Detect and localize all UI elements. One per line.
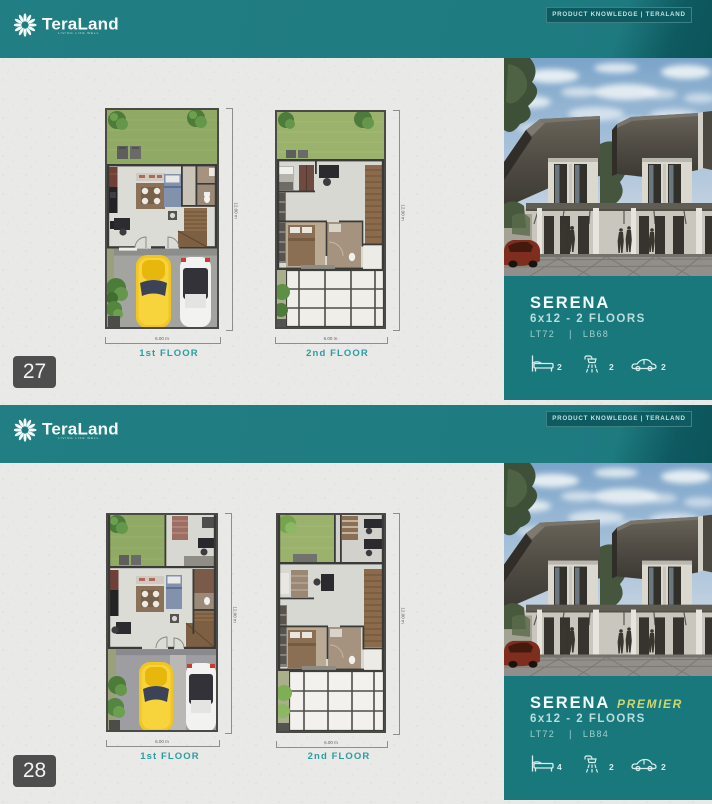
svg-text:2: 2 [661,762,666,772]
svg-text:2: 2 [609,762,614,772]
svg-text:2: 2 [661,362,666,372]
svg-text:LIVING LIFE WELL: LIVING LIFE WELL [58,436,99,440]
svg-text:4: 4 [557,762,562,772]
svg-text:2: 2 [609,362,614,372]
svg-text:2: 2 [557,362,562,372]
svg-text:LIVING LIFE WELL: LIVING LIFE WELL [58,31,99,35]
